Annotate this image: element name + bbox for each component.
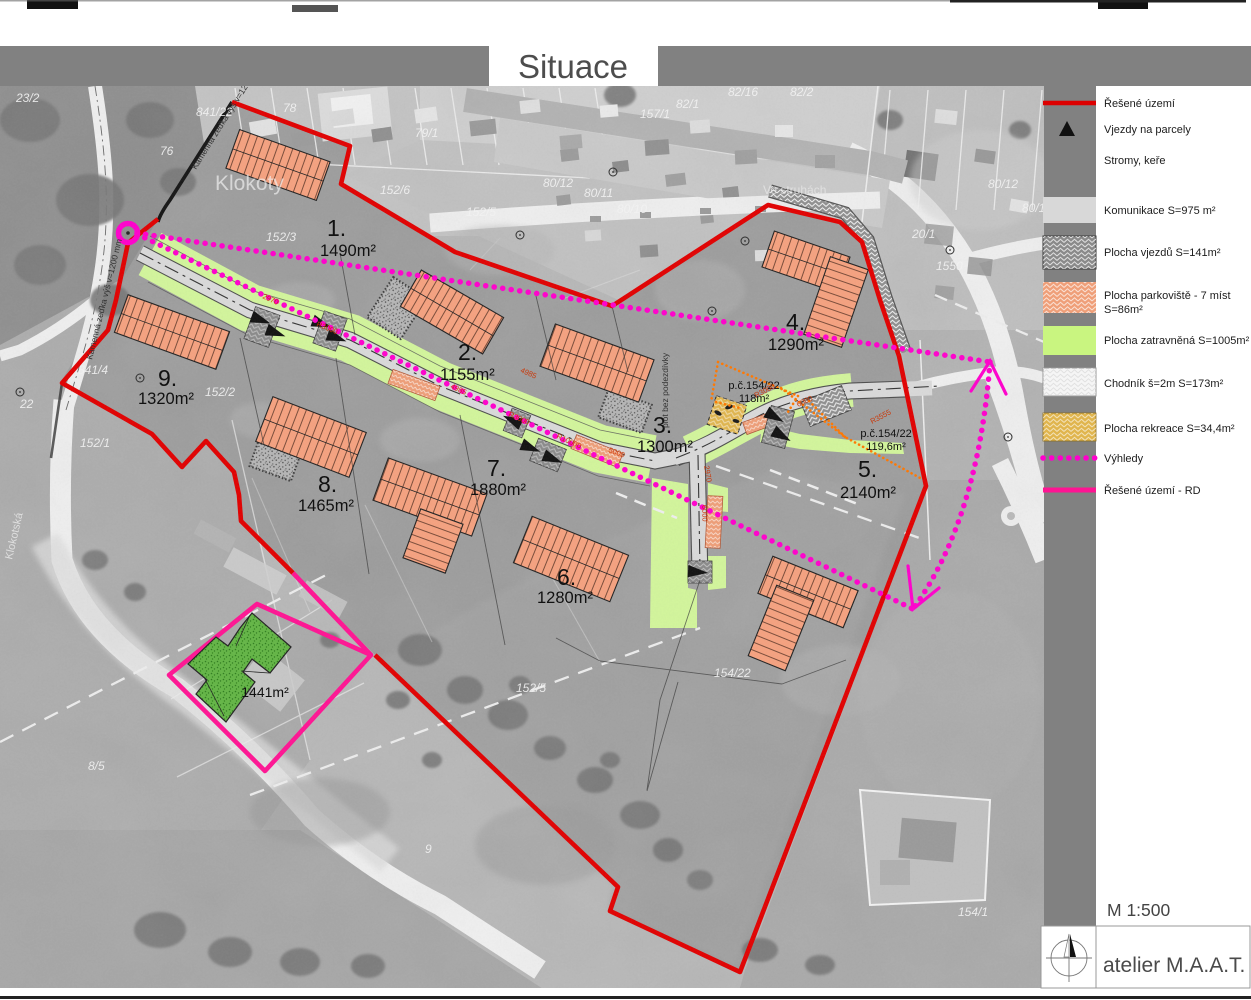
svg-text:1280m²: 1280m²: [537, 589, 593, 607]
svg-text:154/22: 154/22: [714, 666, 751, 680]
svg-text:Výhledy: Výhledy: [1104, 453, 1144, 465]
svg-text:Plocha vjezdů S=141m²: Plocha vjezdů S=141m²: [1104, 247, 1221, 259]
svg-text:119,6m²: 119,6m²: [866, 441, 906, 453]
svg-text:8/5: 8/5: [88, 759, 105, 773]
svg-text:152/1: 152/1: [80, 436, 110, 450]
svg-text:1441m²: 1441m²: [241, 684, 289, 700]
svg-text:154/1: 154/1: [958, 905, 988, 919]
svg-text:Stromy, keře: Stromy, keře: [1104, 155, 1166, 167]
svg-text:1320m²: 1320m²: [138, 390, 194, 408]
svg-text:2.: 2.: [458, 339, 477, 365]
svg-text:82/2: 82/2: [790, 85, 814, 99]
svg-text:78: 78: [283, 101, 297, 115]
svg-text:1290m²: 1290m²: [768, 336, 824, 354]
svg-text:5.: 5.: [858, 456, 877, 482]
svg-text:S=86m²: S=86m²: [1104, 304, 1143, 316]
svg-text:Řešené území - RD: Řešené území - RD: [1104, 484, 1201, 497]
svg-text:Situace: Situace: [518, 48, 628, 85]
svg-text:157/1: 157/1: [640, 107, 670, 121]
svg-text:atelier M.A.A.T.: atelier M.A.A.T.: [1103, 954, 1245, 977]
svg-text:Plocha zatravněná S=1005m²: Plocha zatravněná S=1005m²: [1104, 335, 1250, 347]
svg-text:Klokoty: Klokoty: [215, 172, 284, 195]
svg-text:152/2: 152/2: [205, 385, 235, 399]
svg-text:76: 76: [160, 144, 174, 158]
svg-text:1300m²: 1300m²: [637, 438, 693, 456]
svg-text:8.: 8.: [318, 471, 337, 497]
svg-text:2140m²: 2140m²: [840, 484, 896, 502]
svg-text:Chodník š=2m S=173m²: Chodník š=2m S=173m²: [1104, 378, 1224, 390]
svg-text:Komunikace S=975 m²: Komunikace S=975 m²: [1104, 205, 1216, 217]
svg-text:1.: 1.: [327, 215, 346, 241]
svg-text:82/16: 82/16: [728, 85, 758, 99]
svg-text:80/12: 80/12: [988, 177, 1018, 191]
svg-text:80/11: 80/11: [584, 186, 613, 200]
svg-text:7.: 7.: [487, 455, 506, 481]
svg-text:1155m²: 1155m²: [440, 366, 495, 384]
svg-text:1880m²: 1880m²: [470, 481, 526, 499]
svg-text:23/2: 23/2: [15, 91, 40, 105]
svg-text:1465m²: 1465m²: [298, 497, 354, 515]
svg-text:20/1: 20/1: [911, 227, 935, 241]
svg-text:Ve struhách: Ve struhách: [763, 183, 826, 197]
svg-text:82/1: 82/1: [676, 97, 699, 111]
svg-text:80/12: 80/12: [543, 176, 573, 190]
svg-text:6.: 6.: [557, 564, 576, 590]
svg-text:152/6: 152/6: [380, 183, 410, 197]
svg-text:1550: 1550: [936, 259, 963, 273]
svg-text:p.č.154/22: p.č.154/22: [860, 428, 911, 440]
svg-text:Plocha rekreace S=34,4m²: Plocha rekreace S=34,4m²: [1104, 423, 1235, 435]
svg-text:152/5: 152/5: [466, 205, 496, 219]
svg-text:4.: 4.: [786, 309, 805, 335]
svg-text:9.: 9.: [158, 365, 177, 391]
svg-text:841/4: 841/4: [78, 363, 108, 377]
svg-text:6000: 6000: [700, 505, 710, 522]
svg-text:Plocha parkoviště - 7 míst: Plocha parkoviště - 7 míst: [1104, 290, 1231, 302]
svg-text:80/10: 80/10: [617, 202, 647, 216]
svg-text:Řešené území: Řešené území: [1104, 97, 1175, 110]
svg-text:79/1: 79/1: [415, 126, 438, 140]
svg-text:plot bez podezdívky: plot bez podezdívky: [660, 352, 670, 428]
svg-text:152/5: 152/5: [516, 681, 546, 695]
svg-text:1490m²: 1490m²: [320, 242, 376, 260]
svg-text:9: 9: [425, 842, 432, 856]
svg-text:M 1:500: M 1:500: [1107, 900, 1170, 920]
svg-text:152/3: 152/3: [266, 230, 296, 244]
svg-text:Vjezdy na parcely: Vjezdy na parcely: [1104, 124, 1191, 136]
svg-text:22: 22: [19, 397, 34, 411]
